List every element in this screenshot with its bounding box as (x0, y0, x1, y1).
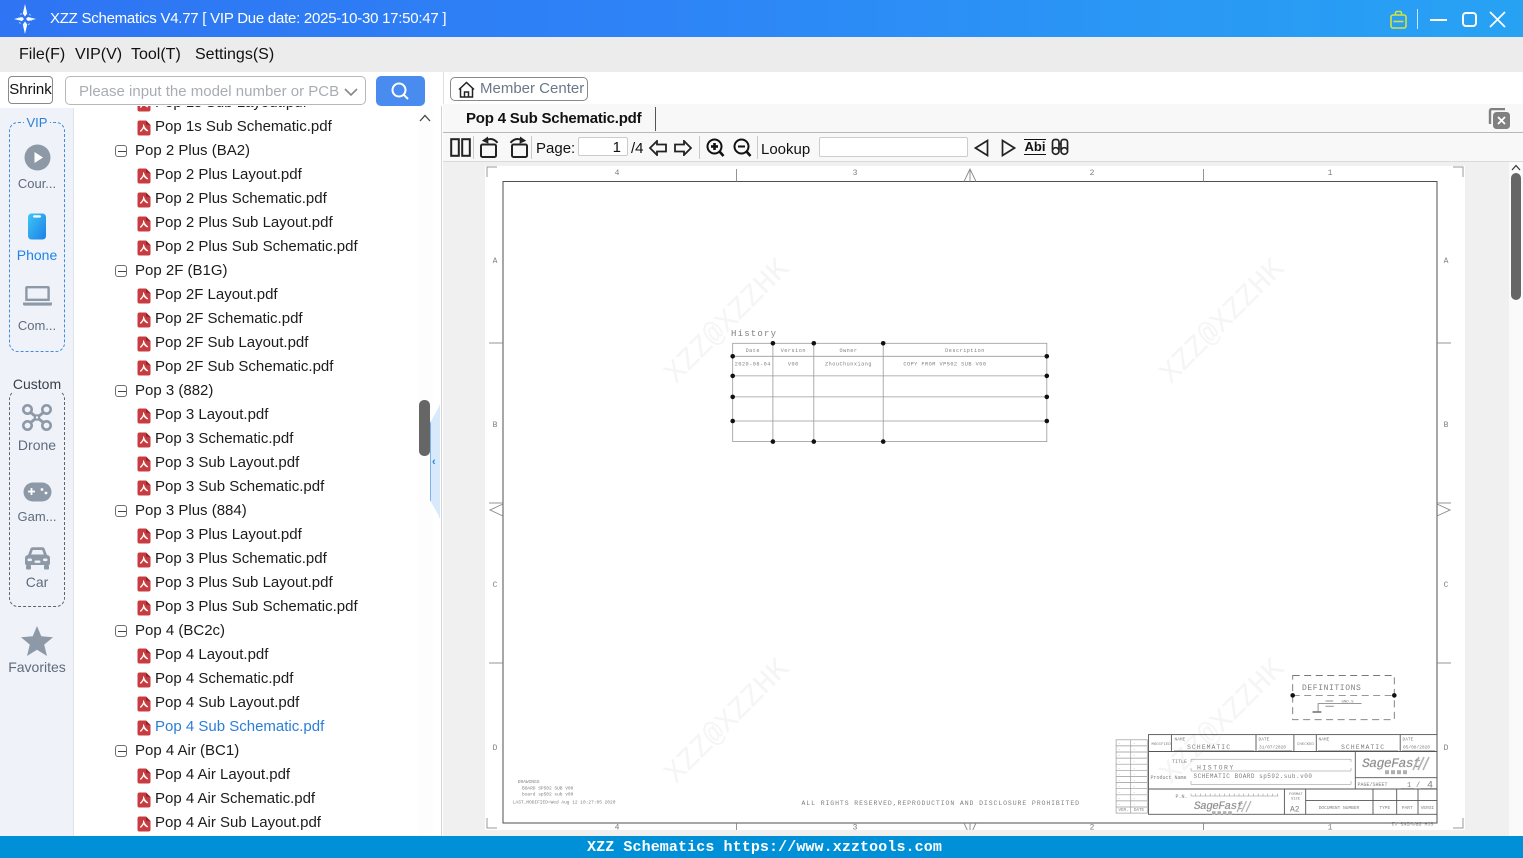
svg-text:-: - (1133, 804, 1135, 808)
svg-text:4: 4 (1427, 781, 1433, 792)
svg-text:2: 2 (1090, 169, 1095, 178)
svg-text:MODIFIED: MODIFIED (1152, 743, 1172, 747)
svg-text:/: / (1416, 782, 1420, 790)
svg-text:-: - (1118, 767, 1120, 771)
svg-text:SIZE: SIZE (1291, 798, 1301, 802)
svg-text:D: D (493, 744, 498, 753)
svg-text:V00: V00 (788, 362, 799, 368)
svg-text:31/07/2020: 31/07/2020 (1259, 745, 1286, 751)
svg-text:-: - (1118, 785, 1120, 789)
svg-text:PART: PART (1402, 805, 1413, 811)
svg-text:-: - (1118, 791, 1120, 795)
svg-text:1: 1 (1328, 824, 1333, 831)
svg-text:Product Name: Product Name (1151, 775, 1187, 781)
svg-text:DRAWINGS: DRAWINGS (518, 779, 540, 785)
svg-text:4: 4 (615, 169, 620, 178)
svg-text:-: - (1118, 755, 1120, 759)
svg-text:GND.S: GND.S (1342, 701, 1355, 705)
svg-text:XZZ@XZZHK: XZZ@XZZHK (1154, 253, 1293, 392)
svg-text:History: History (731, 329, 777, 339)
svg-text:VERSI: VERSI (1421, 805, 1435, 811)
svg-text:Description: Description (945, 348, 985, 354)
svg-text:4: 4 (615, 824, 620, 831)
svg-text:05/08/2020: 05/08/2020 (1403, 745, 1430, 751)
svg-text:-: - (1133, 779, 1135, 783)
svg-text:-: - (1118, 797, 1120, 801)
svg-text:SageFast: SageFast (1362, 756, 1420, 771)
svg-text:DEFINITIONS: DEFINITIONS (1302, 684, 1361, 693)
svg-text:-: - (1118, 742, 1120, 746)
svg-text:D: D (1444, 744, 1449, 753)
svg-text:NAME: NAME (1319, 737, 1330, 743)
svg-text:-: - (1118, 773, 1120, 777)
svg-text:XZZ@XZZHK: XZZ@XZZHK (659, 653, 798, 792)
svg-text:2: 2 (1090, 824, 1095, 831)
svg-text:P.N.: P.N. (1176, 794, 1188, 800)
svg-text:-: - (1133, 797, 1135, 801)
svg-text:PAGE/SHEET: PAGE/SHEET (1358, 782, 1388, 788)
svg-text:board sp502 sub v00: board sp502 sub v00 (522, 792, 574, 798)
svg-text:-: - (1133, 767, 1135, 771)
svg-text:TITLE: TITLE (1172, 759, 1187, 765)
svg-text:DATE: DATE (1403, 737, 1414, 743)
svg-text:1: 1 (1407, 782, 1411, 790)
svg-text:-: - (1133, 749, 1135, 753)
svg-text:SCH DRAWING A2: SCH DRAWING A2 (1391, 820, 1433, 826)
svg-text:FORMAT: FORMAT (1289, 793, 1303, 797)
svg-text:DATE: DATE (1134, 809, 1145, 813)
svg-text:-: - (1133, 791, 1135, 795)
svg-text:-: - (1133, 785, 1135, 789)
svg-text:CHECKED: CHECKED (1297, 743, 1314, 747)
svg-text:XZZ@XZZHK: XZZ@XZZHK (659, 253, 798, 392)
svg-text:-: - (1118, 749, 1120, 753)
svg-text:BOARD SP502 SUB V00: BOARD SP502 SUB V00 (522, 786, 574, 792)
svg-text:B: B (1444, 421, 1449, 430)
svg-text:ZhouChunxiang: ZhouChunxiang (825, 362, 872, 368)
svg-text:2020-08-04: 2020-08-04 (735, 362, 771, 368)
svg-text:-: - (1118, 804, 1120, 808)
svg-text:NAME: NAME (1175, 737, 1186, 743)
svg-text:LAST_MODIFIED=Wed Aug 12 10:27: LAST_MODIFIED=Wed Aug 12 10:27:05 2020 (513, 800, 616, 806)
svg-text:A: A (493, 257, 498, 266)
svg-text:-: - (1133, 761, 1135, 765)
svg-text:ALL RIGHTS RESERVED,REPRODUCTI: ALL RIGHTS RESERVED,REPRODUCTION AND DIS… (802, 800, 1080, 807)
svg-text:3: 3 (853, 824, 858, 831)
svg-text:TYPE: TYPE (1379, 805, 1390, 811)
svg-text:SCHEMATIC BOARD sp592.sub.v00: SCHEMATIC BOARD sp592.sub.v00 (1194, 773, 1313, 780)
svg-text:DATE: DATE (1259, 737, 1270, 743)
svg-text:C: C (1444, 581, 1449, 590)
svg-text:-: - (1118, 761, 1120, 765)
svg-text:-: - (1133, 742, 1135, 746)
svg-text:SCHEMATIC: SCHEMATIC (1341, 744, 1385, 751)
svg-text:-: - (1133, 773, 1135, 777)
svg-text:1: 1 (1328, 169, 1333, 178)
svg-text:A: A (1444, 257, 1449, 266)
svg-text:B: B (493, 421, 498, 430)
svg-text:HISTORY: HISTORY (1197, 765, 1235, 772)
svg-text:A2: A2 (1290, 806, 1300, 815)
svg-text:-: - (1118, 779, 1120, 783)
svg-text:SCHEMATIC: SCHEMATIC (1187, 744, 1231, 751)
svg-text:DOCUMENT NUMBER: DOCUMENT NUMBER (1319, 805, 1360, 811)
svg-text:Date: Date (746, 348, 760, 354)
svg-text:C: C (493, 581, 498, 590)
svg-text:VER.: VER. (1119, 809, 1129, 813)
svg-text:-: - (1133, 755, 1135, 759)
svg-text:COPY FROM VP502 SUB V00: COPY FROM VP502 SUB V00 (903, 362, 986, 368)
svg-text:Version: Version (781, 348, 806, 354)
svg-text:3: 3 (853, 169, 858, 178)
svg-text:Owner: Owner (839, 348, 857, 354)
